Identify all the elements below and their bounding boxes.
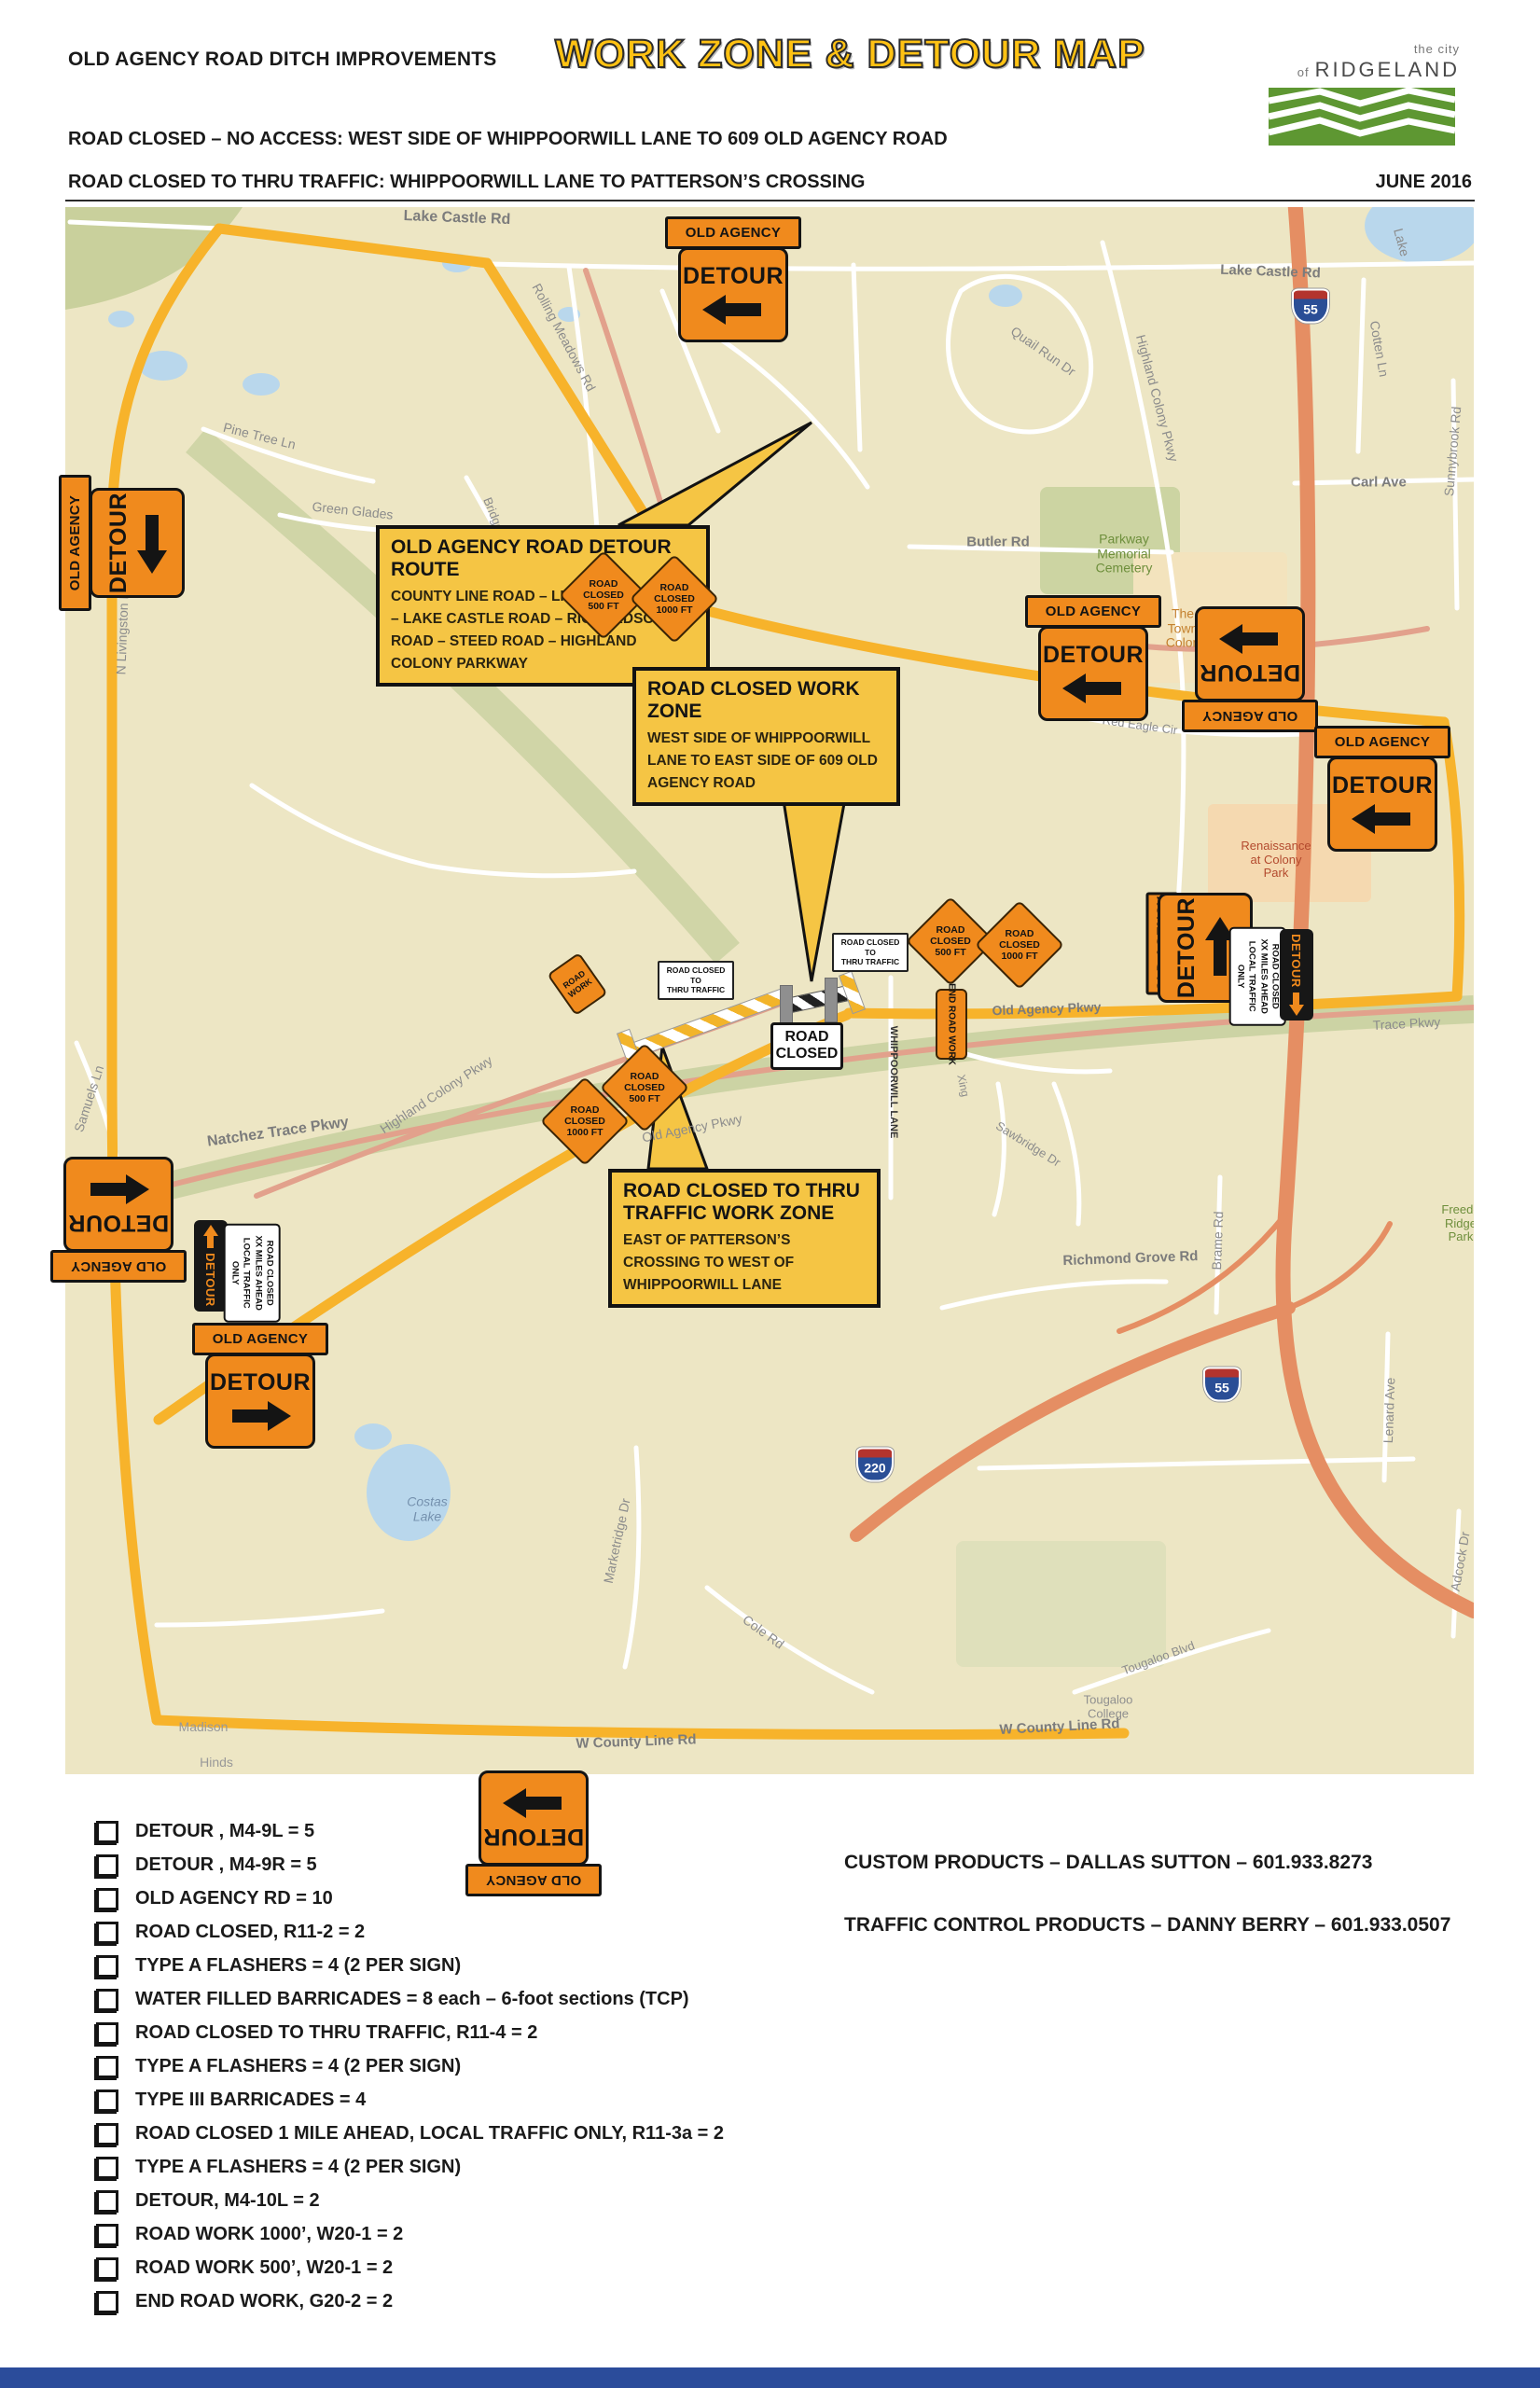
checklist-item: ROAD CLOSED 1 MILE AHEAD, LOCAL TRAFFIC … — [96, 2123, 724, 2145]
checklist-item: TYPE A FLASHERS = 4 (2 PER SIGN) — [96, 2157, 724, 2178]
detour-label: DETOUR — [68, 1211, 169, 1234]
checklist-item-label: ROAD WORK 500’, W20-1 = 2 — [135, 2257, 393, 2279]
checklist-item-label: TYPE III BARRICADES = 4 — [135, 2089, 366, 2111]
map-road-label: Cotten Ln — [1367, 320, 1391, 379]
left-arrow-icon — [503, 1788, 564, 1818]
map-road-label: FreedoRidgePark — [1441, 1203, 1474, 1244]
checkbox-icon — [96, 1989, 118, 2011]
detour-sign-old-agency: OLD AGENCY DETOUR — [191, 1323, 329, 1453]
detour-label: DETOUR — [210, 1371, 311, 1395]
interstate-shield-icon: 55 — [1203, 1368, 1241, 1402]
map-road-label: Carl Ave — [1351, 476, 1407, 492]
checkbox-icon — [96, 2157, 118, 2179]
map-road-label: Natchez Trace Pkwy — [206, 1114, 350, 1150]
end-road-work-sign: END ROAD WORK — [936, 989, 967, 1060]
detour-label: DETOUR — [683, 265, 784, 288]
checkbox-icon — [96, 1888, 118, 1910]
old-agency-plaque: OLD AGENCY — [1182, 700, 1318, 732]
old-agency-plaque: OLD AGENCY — [1314, 726, 1450, 758]
checklist-item-label: ROAD CLOSED 1 MILE AHEAD, LOCAL TRAFFIC … — [135, 2123, 724, 2145]
page-title: WORK ZONE & DETOUR MAP — [555, 32, 1145, 77]
checklist-item-label: ROAD CLOSED TO THRU TRAFFIC, R11-4 = 2 — [135, 2022, 537, 2044]
checklist-item: ROAD CLOSED, R11-2 = 2 — [96, 1922, 724, 1943]
checklist-item-label: DETOUR , M4-9R = 5 — [135, 1854, 317, 1876]
checklist-item: ROAD WORK 1000’, W20-1 = 2 — [96, 2224, 724, 2245]
old-agency-plaque: OLD AGENCY — [192, 1323, 328, 1355]
map-road-label: WHIPPOORWILL LANE — [888, 1026, 899, 1139]
checkbox-icon — [96, 2190, 118, 2213]
logo-ridges-icon — [1269, 88, 1455, 146]
checklist-item: END ROAD WORK, G20-2 = 2 — [96, 2291, 724, 2312]
map-road-label: Sunnybrook Rd — [1442, 406, 1464, 497]
checklist-item: TYPE A FLASHERS = 4 (2 PER SIGN) — [96, 1955, 724, 1977]
map-road-label: Rolling Meadows Rd — [529, 282, 598, 395]
callout-title: ROAD CLOSED WORK ZONE — [647, 678, 885, 723]
checklist-item: DETOUR, M4-10L = 2 — [96, 2190, 724, 2212]
detour-marker-sign: DETOUR — [1280, 929, 1313, 1020]
detour-label: DETOUR — [1332, 774, 1433, 798]
right-arrow-icon — [229, 1401, 291, 1431]
interstate-shield-icon: 55 — [1292, 289, 1329, 324]
left-arrow-icon — [1062, 673, 1124, 703]
left-arrow-icon — [1219, 624, 1281, 654]
down-arrow-icon — [137, 512, 167, 574]
map-road-label: Hinds — [200, 1756, 233, 1770]
contact-line: TRAFFIC CONTROL PRODUCTS – DANNY BERRY –… — [844, 1914, 1450, 1937]
detour-sign-old-agency: OLD AGENCY DETOUR — [1313, 726, 1451, 856]
project-title: OLD AGENCY ROAD DITCH IMPROVEMENTS — [68, 49, 497, 71]
detour-sign-old-agency: OLD AGENCY DETOUR — [59, 474, 189, 612]
map-road-label: Lake Castle Rd — [403, 208, 510, 229]
map-road-label: Green Glades — [312, 500, 394, 523]
checklist-item-label: TYPE A FLASHERS = 4 (2 PER SIGN) — [135, 2157, 461, 2178]
checkbox-icon — [96, 1922, 118, 1944]
old-agency-plaque: OLD AGENCY — [59, 475, 91, 611]
map-road-label: CostasLake — [407, 1494, 448, 1523]
callout-title: ROAD CLOSED TO THRU TRAFFIC WORK ZONE — [623, 1180, 866, 1225]
checkbox-icon — [96, 2224, 118, 2246]
logo-name: RIDGELAND — [1315, 58, 1460, 81]
up-arrow-icon — [203, 1225, 218, 1248]
map-road-label: Pine Tree Ln — [222, 421, 298, 452]
checklist-item-label: DETOUR , M4-9L = 5 — [135, 1821, 314, 1842]
detour-sign-old-agency: OLD AGENCY DETOUR — [49, 1152, 187, 1283]
checklist-item: DETOUR , M4-9R = 5 — [96, 1854, 724, 1876]
detour-marker-sign: DETOUR — [194, 1220, 228, 1312]
map-road-label: Renaissanceat ColonyPark — [1241, 840, 1311, 881]
map-road-label: Samuels Ln — [72, 1063, 107, 1133]
detour-label: DETOUR — [1200, 660, 1300, 684]
closure-line-2: ROAD CLOSED TO THRU TRAFFIC: WHIPPOORWIL… — [68, 172, 865, 193]
detour-sign-old-agency: OLD AGENCY DETOUR — [1024, 595, 1162, 726]
left-arrow-icon — [702, 295, 764, 325]
checklist-item: OLD AGENCY RD = 10 — [96, 1888, 724, 1909]
detour-label: DETOUR — [1043, 644, 1144, 667]
map-road-label: Richmond Grove Rd — [1062, 1249, 1199, 1270]
map-road-label: Lake — [1391, 227, 1412, 257]
closure-line-1: ROAD CLOSED – NO ACCESS: WEST SIDE OF WH… — [68, 129, 948, 150]
down-arrow-icon — [1289, 993, 1304, 1016]
checklist-item-label: END ROAD WORK, G20-2 = 2 — [135, 2291, 393, 2312]
checkbox-icon — [96, 1955, 118, 1978]
callout-body: WEST SIDE OF WHIPPOORWILL LANE TO EAST S… — [647, 728, 885, 795]
contact-line: CUSTOM PRODUCTS – DALLAS SUTTON – 601.93… — [844, 1852, 1372, 1874]
map-road-label: Lenard Ave — [1381, 1377, 1398, 1443]
sign-inventory-checklist: DETOUR , M4-9L = 5DETOUR , M4-9R = 5OLD … — [96, 1821, 724, 2325]
page: OLD AGENCY ROAD DITCH IMPROVEMENTS WORK … — [0, 0, 1540, 2388]
map-road-label: Marketridge Dr — [602, 1497, 634, 1585]
checklist-item: TYPE A FLASHERS = 4 (2 PER SIGN) — [96, 2056, 724, 2077]
road-closed-thru-traffic-sign: ROAD CLOSEDTOTHRU TRAFFIC — [658, 961, 734, 1000]
checklist-item-label: OLD AGENCY RD = 10 — [135, 1888, 333, 1909]
callout-thru-traffic-zone: ROAD CLOSED TO THRU TRAFFIC WORK ZONE EA… — [608, 1169, 881, 1308]
checkbox-icon — [96, 1821, 118, 1843]
checklist-item-label: TYPE A FLASHERS = 4 (2 PER SIGN) — [135, 2056, 461, 2077]
interstate-shield-icon: 220 — [856, 1448, 894, 1482]
detour-label: DETOUR — [204, 1253, 218, 1307]
checklist-item: WATER FILLED BARRICADES = 8 each – 6-foo… — [96, 1989, 724, 2010]
header-divider — [65, 200, 1475, 201]
detour-sign-old-agency: OLD AGENCY DETOUR — [1181, 602, 1319, 732]
map-road-label: TougalooCollege — [1084, 1693, 1133, 1720]
old-agency-plaque: OLD AGENCY — [1025, 595, 1161, 628]
detour-label: DETOUR — [1290, 934, 1304, 988]
map-road-label: Old Agency Pkwy — [992, 1000, 1101, 1019]
checkbox-icon — [96, 2257, 118, 2280]
map-road-label: Xing — [954, 1074, 971, 1098]
right-arrow-icon — [88, 1174, 149, 1204]
detour-label: DETOUR — [107, 493, 131, 593]
callout-body: EAST OF PATTERSON’S CROSSING TO WEST OF … — [623, 1229, 866, 1297]
old-agency-plaque: OLD AGENCY — [50, 1250, 187, 1283]
callout-road-closed-zone: ROAD CLOSED WORK ZONE WEST SIDE OF WHIPP… — [632, 667, 900, 806]
road-closed-miles-sign: ROAD CLOSEDXX MILES AHEADLOCAL TRAFFIC O… — [223, 1224, 280, 1323]
road-closed-sign: ROADCLOSED — [770, 1022, 843, 1070]
left-arrow-icon — [1352, 804, 1413, 834]
road-closed-miles-sign: ROAD CLOSEDXX MILES AHEADLOCAL TRAFFIC O… — [1228, 927, 1285, 1026]
checklist-item: ROAD CLOSED TO THRU TRAFFIC, R11-4 = 2 — [96, 2022, 724, 2044]
old-agency-plaque: OLD AGENCY — [665, 216, 801, 249]
map-date: JUNE 2016 — [1376, 172, 1472, 193]
checklist-item-label: DETOUR, M4-10L = 2 — [135, 2190, 320, 2212]
map-road-label: Adcock Dr — [1449, 1531, 1474, 1592]
checkbox-icon — [96, 1854, 118, 1877]
detour-sign-old-agency: OLD AGENCY DETOUR — [664, 216, 802, 347]
city-logo: the city ofRIDGELAND — [1269, 41, 1460, 146]
checklist-item: DETOUR , M4-9L = 5 — [96, 1821, 724, 1842]
checklist-item: TYPE III BARRICADES = 4 — [96, 2089, 724, 2111]
barricade-post — [825, 978, 838, 1022]
map-road-label: Highland Colony Pkwy — [378, 1053, 495, 1136]
map-road-label: Lake Castle Rd — [1220, 263, 1321, 283]
map-road-label: Madison — [179, 1720, 229, 1735]
map-road-label: Butler Rd — [966, 535, 1030, 551]
map-road-label: Sawbridge Dr — [993, 1119, 1063, 1170]
map-road-label: Trace Pkwy — [1372, 1015, 1440, 1033]
checklist-item-label: ROAD WORK 1000’, W20-1 = 2 — [135, 2224, 403, 2245]
checklist-item: ROAD WORK 500’, W20-1 = 2 — [96, 2257, 724, 2279]
map-road-label: Brame Rd — [1210, 1211, 1227, 1270]
checklist-item-label: WATER FILLED BARRICADES = 8 each – 6-foo… — [135, 1989, 689, 2010]
checkbox-icon — [96, 2089, 118, 2112]
footer-bar — [0, 2367, 1540, 2388]
road-closed-thru-traffic-sign: ROAD CLOSEDTOTHRU TRAFFIC — [832, 933, 909, 972]
checklist-item-label: ROAD CLOSED, R11-2 = 2 — [135, 1922, 365, 1943]
map-road-label: Quail Run Dr — [1007, 324, 1077, 379]
map-road-label: Cole Rd — [740, 1613, 786, 1652]
map-road-label: Highland Colony Pkwy — [1132, 333, 1180, 463]
detour-label: DETOUR — [1175, 897, 1199, 998]
checkbox-icon — [96, 2123, 118, 2145]
checkbox-icon — [96, 2022, 118, 2045]
map-road-label: Tougaloo Blvd — [1120, 1639, 1197, 1678]
map-road-label: W County Line Rd — [576, 1732, 697, 1752]
checklist-item-label: TYPE A FLASHERS = 4 (2 PER SIGN) — [135, 1955, 461, 1977]
checkbox-icon — [96, 2056, 118, 2078]
checkbox-icon — [96, 2291, 118, 2313]
map-road-label: ParkwayMemorialCemetery — [1096, 532, 1153, 576]
